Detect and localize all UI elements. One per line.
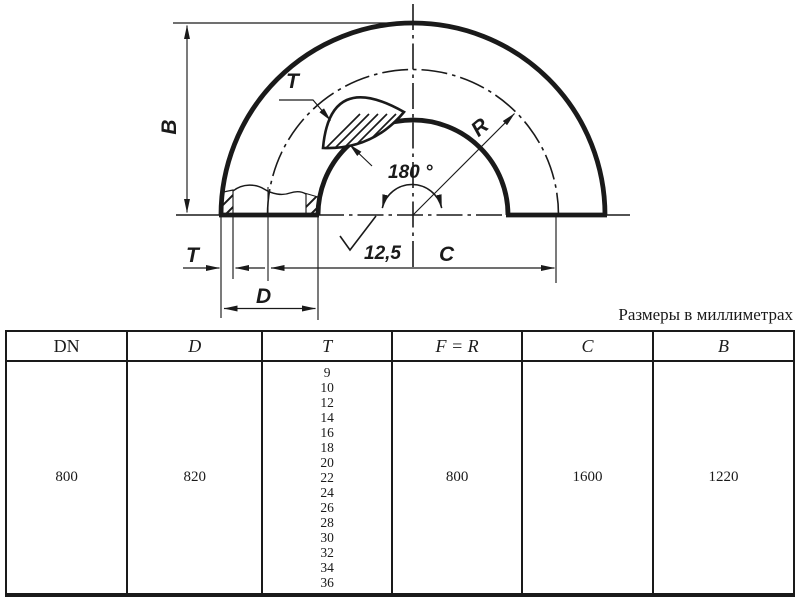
left-leg-section: [214, 185, 327, 281]
label-c: C: [439, 243, 455, 266]
table-row: 800 820 91012141618202224262830323436 80…: [6, 361, 794, 595]
dimension-lines: [183, 26, 555, 309]
cell-c: 1600: [522, 361, 653, 595]
leader-t-top: [279, 100, 331, 121]
leader-t-inner: [350, 145, 373, 167]
label-d: D: [256, 285, 271, 308]
col-header-dn: DN: [6, 331, 127, 361]
col-header-b: B: [653, 331, 794, 361]
cell-d: 820: [127, 361, 262, 595]
cell-t-values: 91012141618202224262830323436: [262, 361, 392, 595]
col-header-c: C: [522, 331, 653, 361]
col-header-d: D: [127, 331, 262, 361]
col-header-t: T: [262, 331, 392, 361]
units-note: Размеры в миллиметрах: [618, 305, 793, 325]
label-t-top: T: [286, 70, 301, 93]
standard-page: B T T D C R 180 ° 12,5 Размеры в миллиме…: [0, 0, 800, 600]
label-t-bottom: T: [186, 244, 201, 267]
table-header: DN D T F = R C B: [6, 331, 794, 361]
wall-cut-section: [312, 97, 414, 162]
dim-angle-arc: [382, 185, 441, 209]
cell-f-r: 800: [392, 361, 522, 595]
elbow-drawing: B T T D C R 180 ° 12,5: [0, 0, 800, 330]
dimensions-table: DN D T F = R C B 800 820 910121416182022…: [5, 330, 795, 597]
centerlines: [176, 4, 630, 270]
cell-dn: 800: [6, 361, 127, 595]
drawing-labels: B T T D C R 180 ° 12,5: [158, 70, 494, 308]
col-header-f-r: F = R: [392, 331, 522, 361]
cell-b: 1220: [653, 361, 794, 595]
label-roughness: 12,5: [364, 243, 401, 264]
label-b: B: [158, 119, 181, 134]
label-angle: 180 °: [388, 162, 433, 183]
